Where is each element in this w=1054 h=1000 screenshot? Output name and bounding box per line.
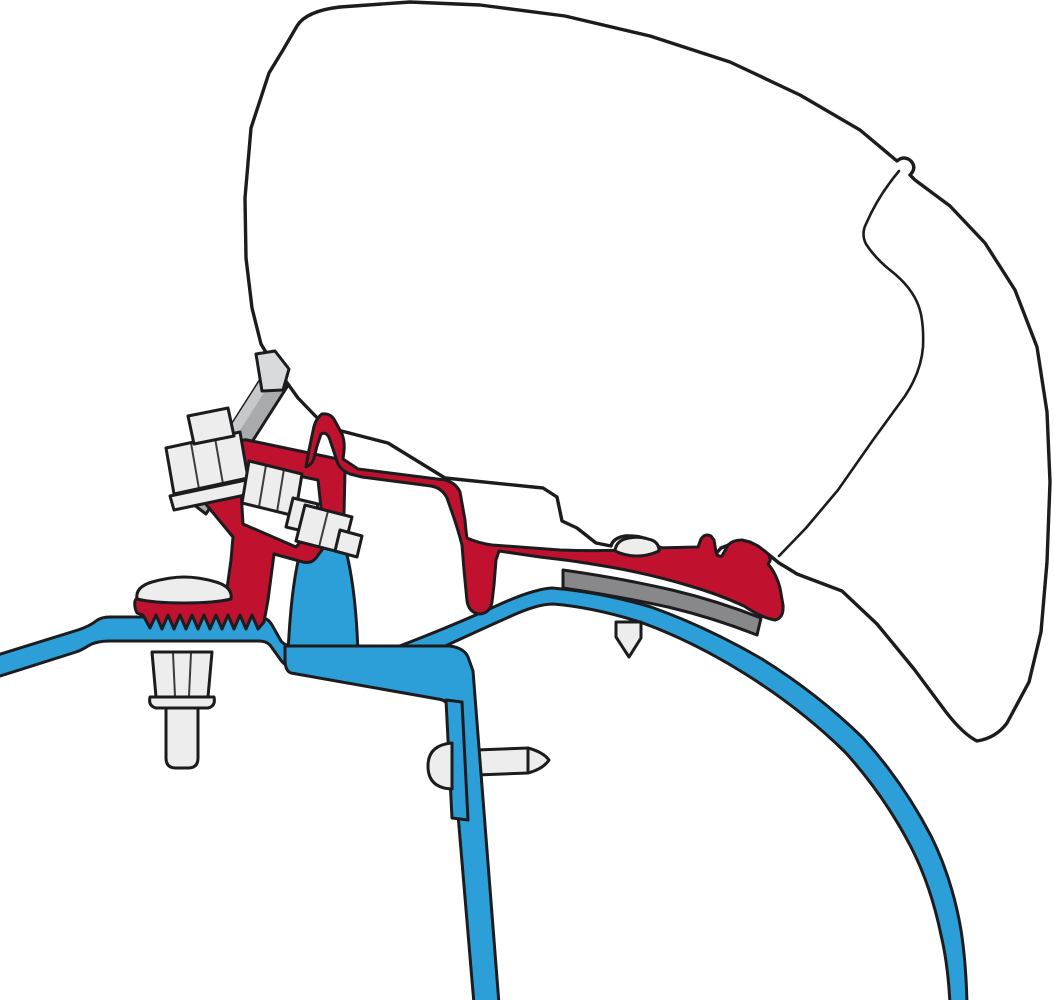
flange-nut-and-stud <box>150 652 215 768</box>
adapter-cross-section-diagram <box>0 0 1054 1000</box>
roof-inner-wall-panel <box>285 646 499 1000</box>
threaded-stud <box>166 708 198 768</box>
flange-dome-screw <box>137 577 231 603</box>
wall-screw-tip <box>528 748 549 773</box>
upper-bolt-hex-top <box>188 408 234 444</box>
wall-screw-head <box>428 743 452 789</box>
rail-screw-head <box>615 537 659 556</box>
rail-screw-tip <box>616 622 641 657</box>
diagram-canvas <box>0 0 1054 1000</box>
lower-bolt-end <box>335 530 362 557</box>
flange-nut <box>152 652 212 697</box>
awning-case-outline <box>245 2 1050 741</box>
flange-nut-collar <box>150 697 215 708</box>
